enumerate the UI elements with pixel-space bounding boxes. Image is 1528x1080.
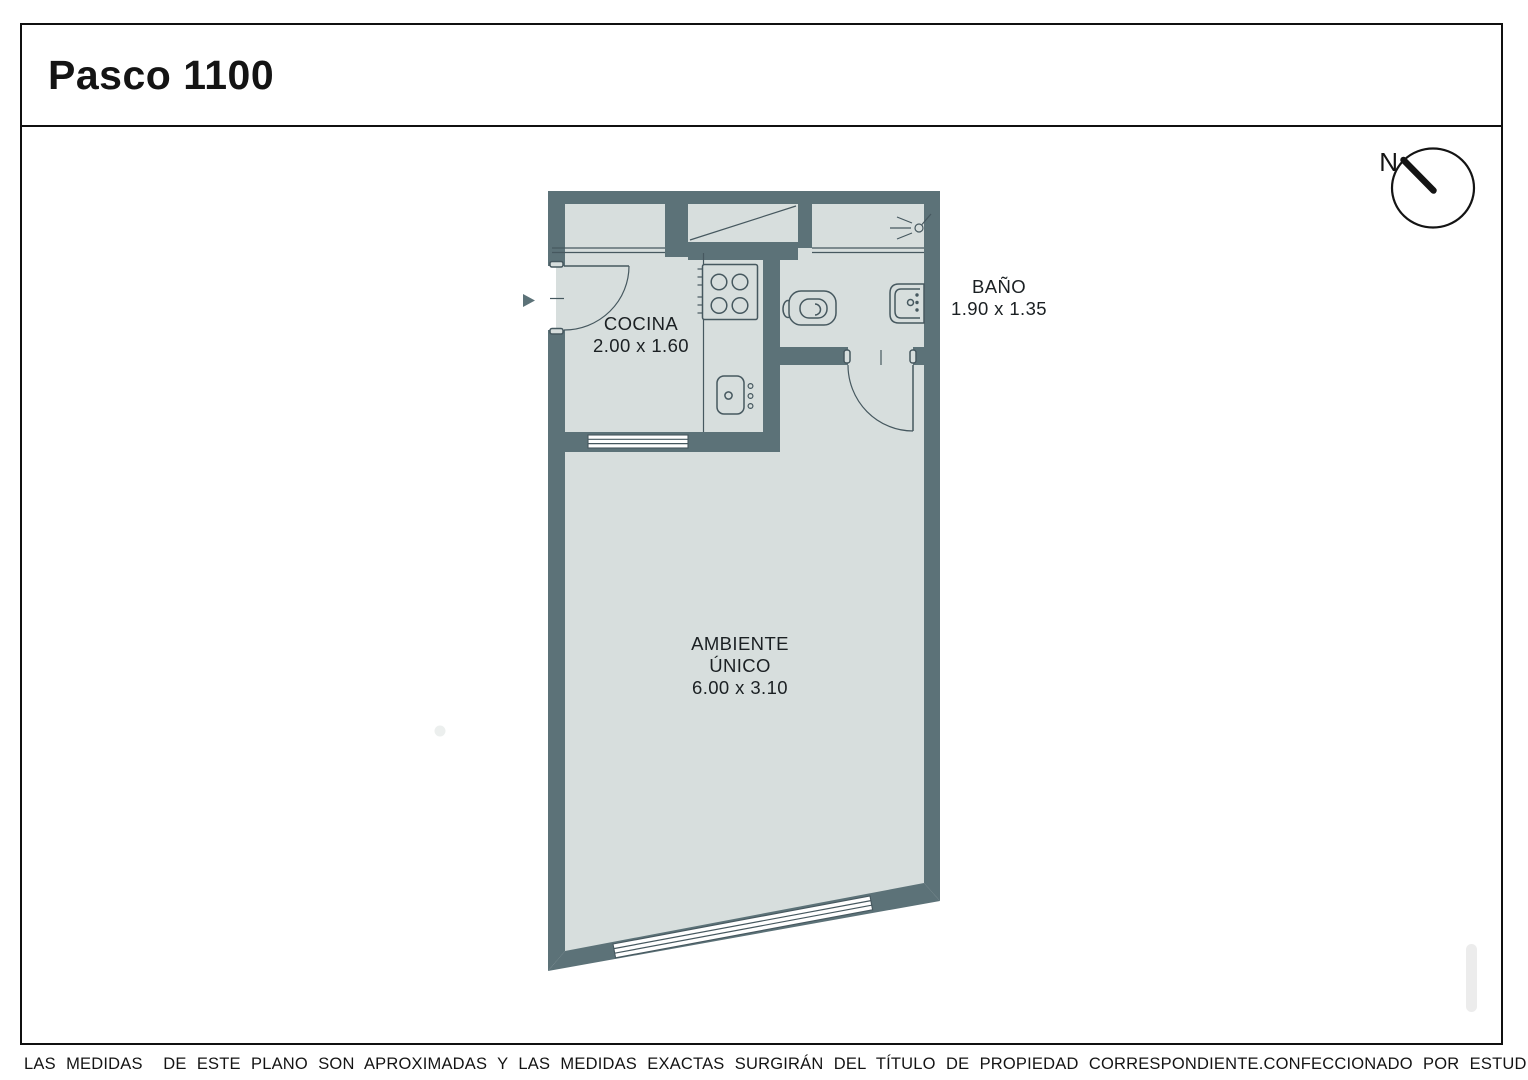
compass-icon: N xyxy=(1379,147,1474,228)
floor-plan: N xyxy=(0,0,1528,1080)
entrance-arrow-icon xyxy=(523,294,535,307)
bano-name: BAÑO xyxy=(951,276,1047,298)
wall-niche-divider-left xyxy=(665,204,688,257)
watermark-dot xyxy=(435,726,446,737)
wall-left-upper xyxy=(548,191,565,266)
bathroom-sink-icon xyxy=(890,284,924,323)
cocina-label: COCINA 2.00 x 1.60 xyxy=(593,313,689,357)
bano-dims: 1.90 x 1.35 xyxy=(951,298,1047,320)
ambiente-name-line2: ÚNICO xyxy=(691,655,789,677)
ambiente-name-line1: AMBIENTE xyxy=(691,633,789,655)
bano-label: BAÑO 1.90 x 1.35 xyxy=(951,276,1047,320)
kitchen-pass-window xyxy=(588,435,688,448)
footer-credit: CONFECCIONADO POR ESTUDIO NARTEX xyxy=(1263,1055,1528,1074)
wall-closet-bottom xyxy=(688,242,798,260)
wall-top xyxy=(548,191,940,204)
footer-disclaimer: LAS MEDIDAS DE ESTE PLANO SON APROXIMADA… xyxy=(24,1055,1263,1074)
cocina-dims: 2.00 x 1.60 xyxy=(593,335,689,357)
ambiente-label: AMBIENTE ÚNICO 6.00 x 3.10 xyxy=(691,633,789,699)
toilet-icon xyxy=(783,291,836,325)
scrollbar-thumb[interactable] xyxy=(1466,944,1477,1012)
wall-right xyxy=(924,191,940,901)
footer: LAS MEDIDAS DE ESTE PLANO SON APROXIMADA… xyxy=(24,1055,1506,1074)
wall-niche-divider-right xyxy=(798,204,812,248)
wall-bath-bottom-left xyxy=(763,347,848,365)
wall-left-lower xyxy=(548,330,565,971)
wall-bath-bottom-right xyxy=(913,347,940,365)
stove-icon xyxy=(698,265,758,320)
ambiente-dims: 6.00 x 3.10 xyxy=(691,677,789,699)
compass-north-label: N xyxy=(1379,147,1398,177)
cocina-name: COCINA xyxy=(593,313,689,335)
